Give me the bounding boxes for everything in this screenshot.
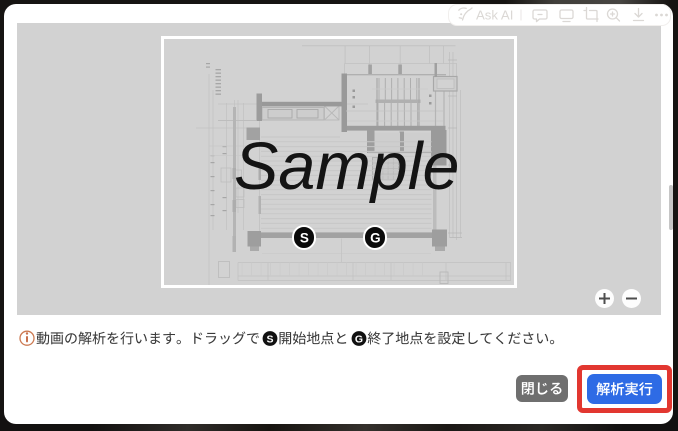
svg-text:Ask AI: Ask AI: [476, 8, 513, 23]
svg-text:G: G: [355, 333, 363, 345]
svg-text:S: S: [299, 231, 308, 246]
svg-text:S: S: [266, 333, 273, 345]
svg-text:G: G: [370, 231, 381, 246]
